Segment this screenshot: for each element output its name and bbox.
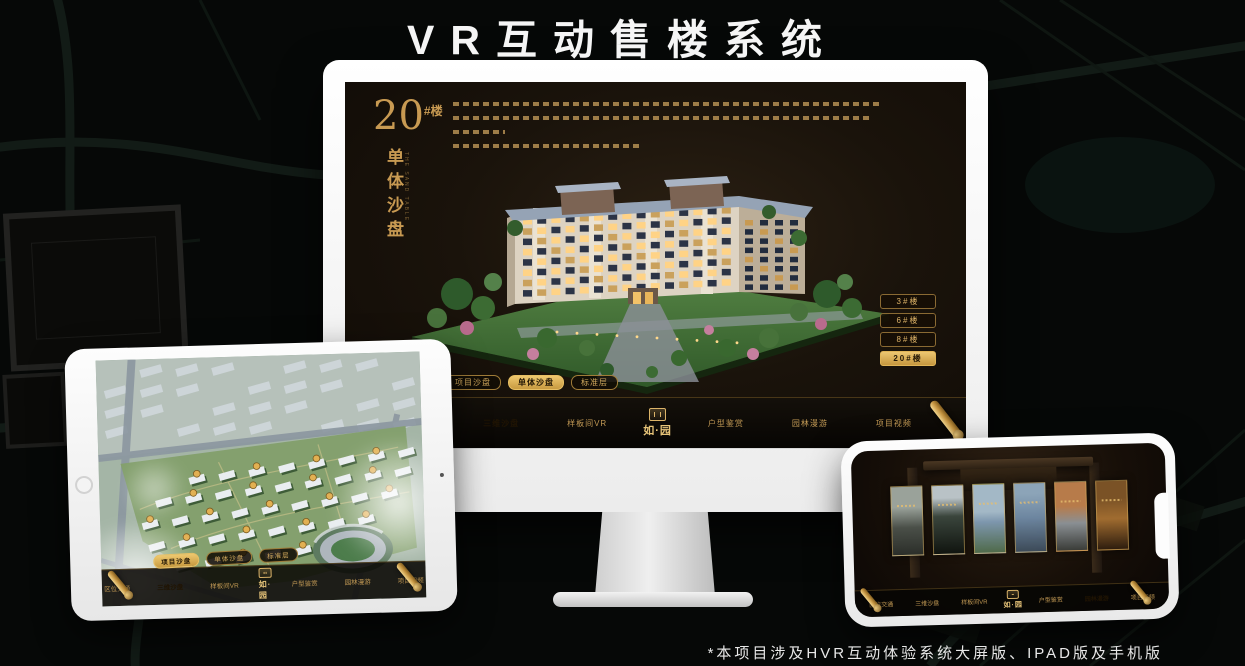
brand-logo: 如·园 <box>1003 590 1023 611</box>
seal-icon <box>1007 590 1019 599</box>
nav-item[interactable]: 园林漫游 <box>1079 591 1115 605</box>
main-navbar: 区位交通三维沙盘样板间VR如·园户型鉴赏园林漫游项目视频 <box>101 560 426 606</box>
brand-logo-text: 如·园 <box>643 422 672 438</box>
seal-icon <box>649 408 666 421</box>
sub-tab[interactable]: 标准层 <box>259 547 298 563</box>
scene-card[interactable] <box>1054 481 1088 552</box>
nav-item[interactable]: 三维沙盘 <box>471 414 531 433</box>
main-navbar: 区位交通三维沙盘样板间VR如·园户型鉴赏园林漫游项目视频 <box>855 582 1170 618</box>
scene-card[interactable] <box>890 485 924 556</box>
nav-item[interactable]: 户型鉴赏 <box>284 574 324 591</box>
building-selector-group: 3#楼6#楼8#楼20#楼 <box>880 294 936 366</box>
scene-card[interactable] <box>1013 482 1047 553</box>
sub-tab[interactable]: 标准层 <box>571 375 618 390</box>
building-button[interactable]: 6#楼 <box>880 313 936 328</box>
brand-logo-text: 如·园 <box>259 578 273 600</box>
nav-item[interactable]: 三维沙盘 <box>150 578 190 595</box>
nav-item[interactable]: 园林漫游 <box>780 414 840 433</box>
seal-icon <box>258 567 271 577</box>
scene-card[interactable] <box>1095 480 1129 551</box>
brand-logo: 如·园 <box>258 567 272 600</box>
tablet-home-button <box>75 476 93 494</box>
sandtable-mode-tabs: 项目沙盘单体沙盘标准层 <box>445 375 618 390</box>
tablet-camera <box>440 473 444 477</box>
sub-tab[interactable]: 项目沙盘 <box>153 553 200 570</box>
phone-bezel: 区位交通三维沙盘样板间VR如·园户型鉴赏园林漫游项目视频 <box>840 432 1179 627</box>
promo-canvas: VR互动售楼系统 20#楼 单体沙盘 THE SAND TABLE <box>0 0 1245 666</box>
sub-tab[interactable]: 单体沙盘 <box>206 550 253 567</box>
phone-notch <box>1154 493 1170 559</box>
brand-logo-text: 如·园 <box>1003 600 1023 611</box>
nav-item[interactable]: 样板间VR <box>203 576 246 593</box>
monitor-stand-foot <box>553 592 753 607</box>
nav-item[interactable]: 户型鉴赏 <box>696 414 756 433</box>
scene-gallery <box>890 480 1129 557</box>
building-button[interactable]: 20#楼 <box>880 351 936 366</box>
building-number-suffix: #楼 <box>424 104 443 118</box>
brand-logo: 如·园 <box>643 408 672 438</box>
phone-screen: 区位交通三维沙盘样板间VR如·园户型鉴赏园林漫游项目视频 <box>851 443 1170 618</box>
building-button[interactable]: 3#楼 <box>880 294 936 309</box>
sub-tab[interactable]: 项目沙盘 <box>445 375 501 390</box>
nav-item[interactable]: 样板间VR <box>955 594 994 608</box>
building-headline: 20#楼 <box>373 96 443 136</box>
tablet-screen: 项目沙盘单体沙盘标准层 区位交通三维沙盘样板间VR如·园户型鉴赏园林漫游项目视频 <box>96 352 427 607</box>
building-button[interactable]: 8#楼 <box>880 332 936 347</box>
nav-item[interactable]: 项目视频 <box>864 414 924 433</box>
nav-item[interactable]: 户型鉴赏 <box>1033 592 1069 606</box>
phone-device: 区位交通三维沙盘样板间VR如·园户型鉴赏园林漫游项目视频 <box>840 432 1179 627</box>
page-title: VR互动售楼系统 <box>0 6 1245 66</box>
tablet-device: 项目沙盘单体沙盘标准层 区位交通三维沙盘样板间VR如·园户型鉴赏园林漫游项目视频 <box>64 339 457 622</box>
building-sandtable-render <box>397 142 897 394</box>
tablet-bezel: 项目沙盘单体沙盘标准层 区位交通三维沙盘样板间VR如·园户型鉴赏园林漫游项目视频 <box>64 339 457 622</box>
nav-item[interactable]: 三维沙盘 <box>909 595 945 609</box>
monitor-stand-neck <box>595 512 715 596</box>
footnote-caption: *本项目涉及HVR互动体验系统大屏版、IPAD版及手机版 <box>708 642 1163 663</box>
nav-item[interactable]: 样板间VR <box>555 414 619 433</box>
scene-card[interactable] <box>972 483 1006 554</box>
scene-card[interactable] <box>931 484 965 555</box>
nav-item[interactable]: 园林漫游 <box>337 573 377 590</box>
sub-tab[interactable]: 单体沙盘 <box>508 375 564 390</box>
building-number: 20 <box>373 93 424 139</box>
